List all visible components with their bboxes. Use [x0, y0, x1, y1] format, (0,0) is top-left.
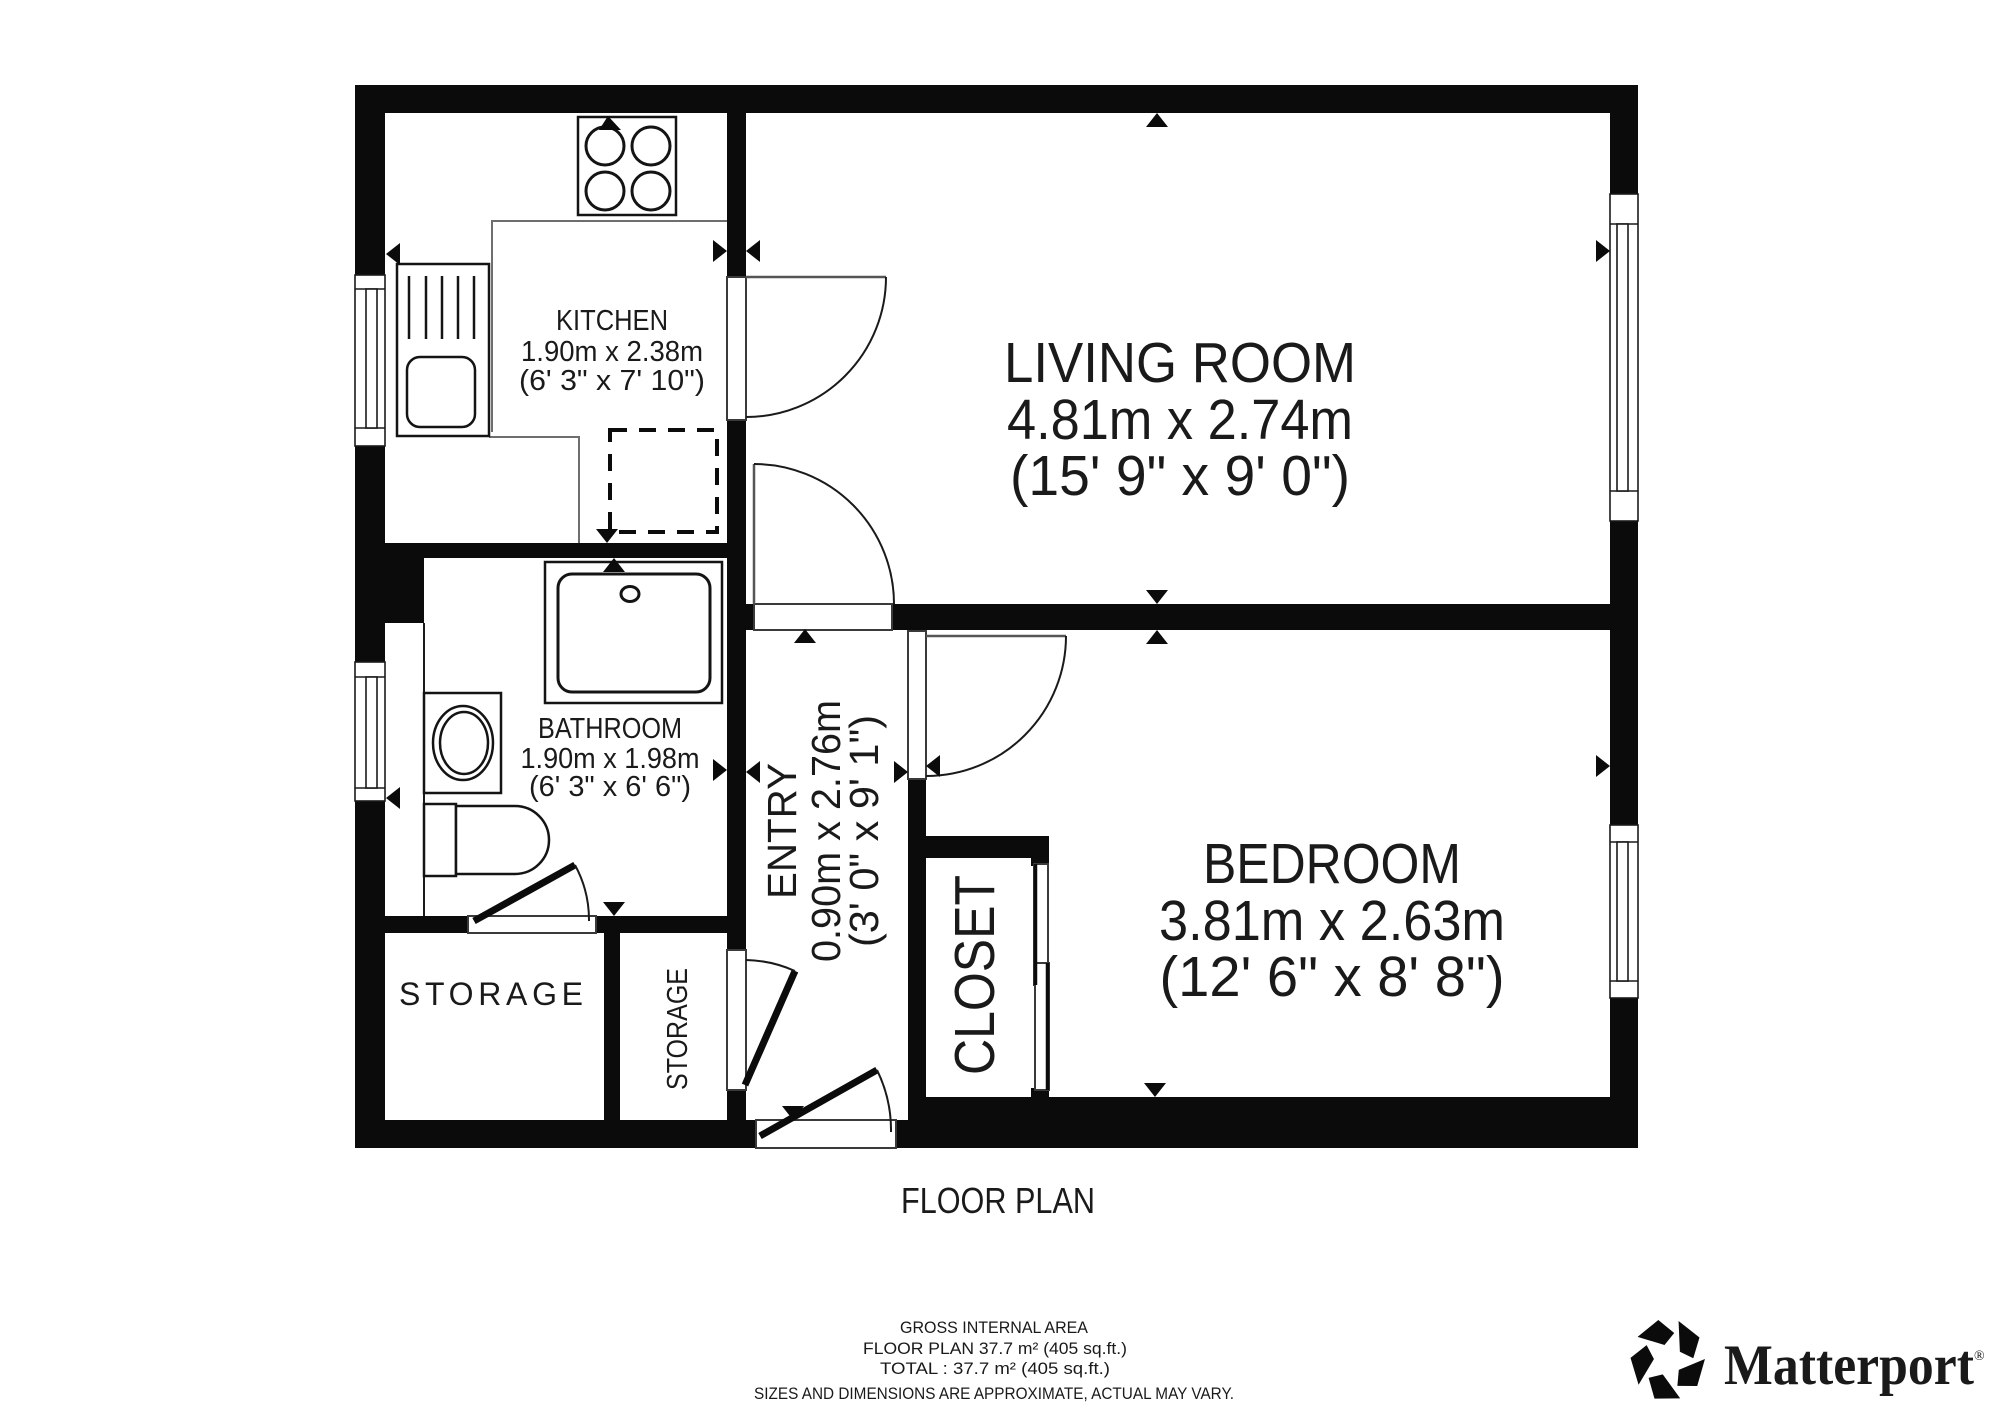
svg-text:(6' 3" x 7' 10"): (6' 3" x 7' 10") — [519, 365, 705, 397]
svg-text:®: ® — [1974, 1349, 1985, 1364]
svg-text:BEDROOM: BEDROOM — [1203, 832, 1461, 896]
svg-text:STORAGE: STORAGE — [399, 976, 583, 1012]
svg-text:(12' 6" x 8' 8"): (12' 6" x 8' 8") — [1160, 945, 1505, 1009]
svg-text:(3' 0" x 9' 1"): (3' 0" x 9' 1") — [841, 715, 887, 947]
svg-text:CLOSET: CLOSET — [943, 875, 1007, 1075]
svg-text:(15' 9" x 9' 0"): (15' 9" x 9' 0") — [1010, 444, 1350, 508]
svg-text:ENTRY: ENTRY — [759, 763, 805, 899]
svg-text:FLOOR PLAN 37.7 m² (405 sq.ft.: FLOOR PLAN 37.7 m² (405 sq.ft.) — [863, 1340, 1127, 1358]
svg-text:STORAGE: STORAGE — [662, 968, 694, 1090]
svg-text:(6' 3" x 6' 6"): (6' 3" x 6' 6") — [529, 771, 691, 803]
svg-text:TOTAL : 37.7 m² (405 sq.ft.): TOTAL : 37.7 m² (405 sq.ft.) — [880, 1360, 1110, 1378]
svg-text:3.81m x 2.63m: 3.81m x 2.63m — [1159, 889, 1505, 953]
svg-text:4.81m x 2.74m: 4.81m x 2.74m — [1007, 388, 1353, 452]
svg-text:GROSS INTERNAL AREA: GROSS INTERNAL AREA — [900, 1319, 1088, 1337]
svg-text:LIVING ROOM: LIVING ROOM — [1004, 331, 1356, 395]
svg-text:SIZES AND DIMENSIONS ARE APPRO: SIZES AND DIMENSIONS ARE APPROXIMATE, AC… — [754, 1385, 1234, 1403]
svg-text:KITCHEN: KITCHEN — [556, 305, 668, 337]
svg-text:BATHROOM: BATHROOM — [538, 713, 682, 745]
svg-text:FLOOR PLAN: FLOOR PLAN — [901, 1180, 1095, 1221]
svg-text:1.90m x 2.38m: 1.90m x 2.38m — [521, 336, 703, 368]
svg-text:Matterport: Matterport — [1724, 1334, 1974, 1397]
